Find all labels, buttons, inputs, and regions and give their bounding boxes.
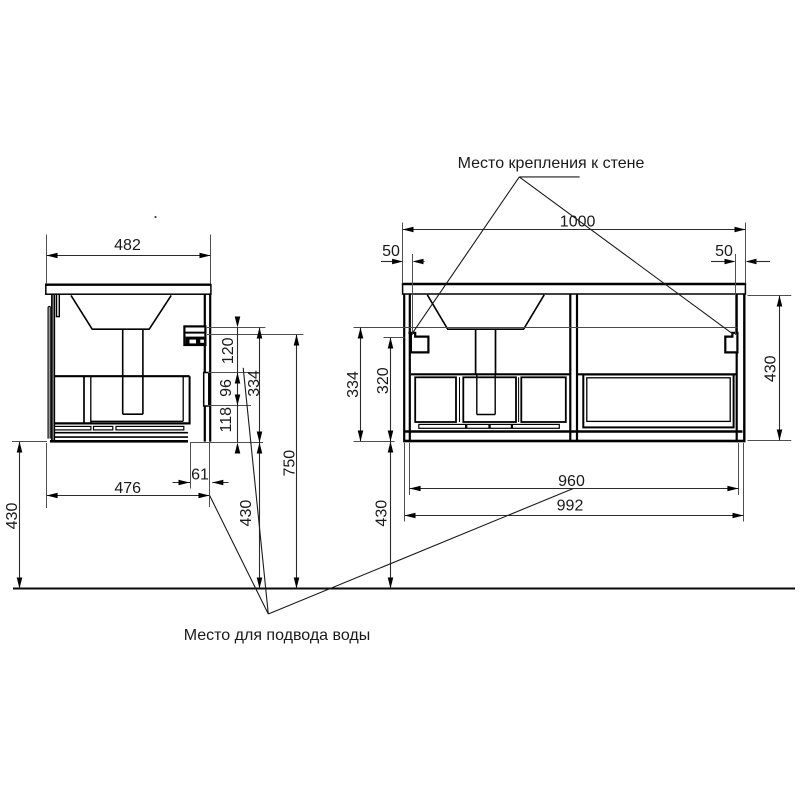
svg-text:430: 430: [4, 503, 21, 530]
svg-text:61: 61: [191, 467, 209, 484]
svg-text:992: 992: [557, 498, 584, 515]
svg-text:120: 120: [220, 337, 237, 364]
svg-text:50: 50: [715, 243, 733, 260]
svg-text:Место крепления к стене: Место крепления к стене: [458, 155, 645, 172]
svg-text:430: 430: [763, 355, 780, 382]
svg-text:Место для подвода воды: Место для подвода воды: [184, 627, 370, 644]
svg-text:750: 750: [282, 450, 299, 477]
svg-text:334: 334: [345, 371, 362, 398]
svg-text:118: 118: [218, 407, 235, 433]
svg-text:50: 50: [382, 243, 400, 260]
svg-text:430: 430: [374, 500, 391, 527]
svg-text:430: 430: [238, 500, 255, 527]
svg-text:476: 476: [114, 480, 141, 497]
svg-text:482: 482: [114, 237, 141, 254]
svg-text:960: 960: [558, 473, 585, 490]
svg-text:96: 96: [218, 379, 235, 397]
svg-text:1000: 1000: [560, 213, 596, 230]
svg-text:334: 334: [246, 370, 263, 397]
svg-text:320: 320: [375, 367, 392, 394]
